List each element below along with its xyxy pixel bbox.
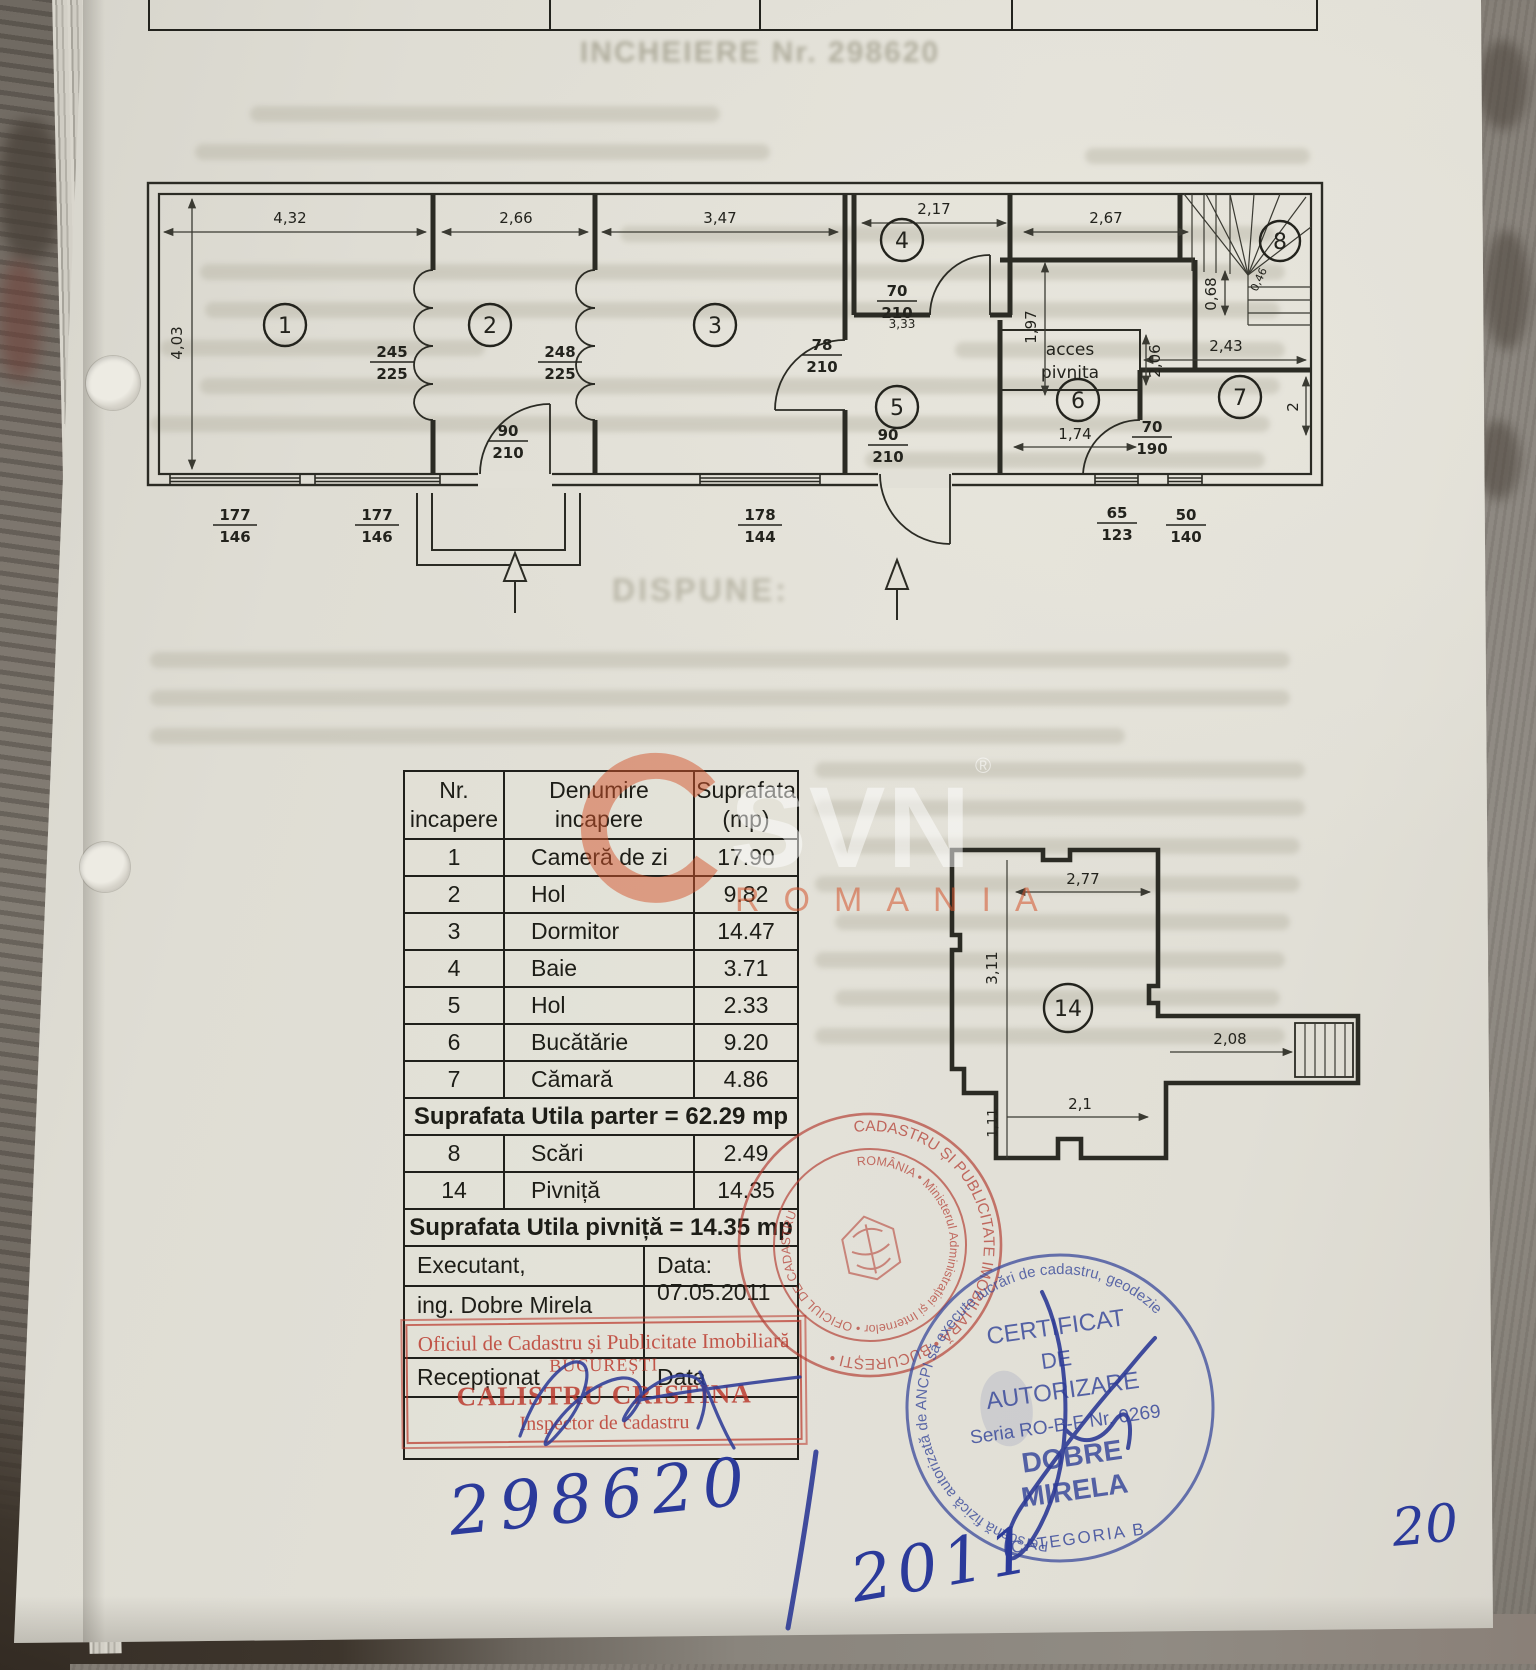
signature-inspector [520, 1362, 800, 1448]
watermark-registered-mark: ® [975, 753, 991, 778]
handwritten-slash [788, 1452, 816, 1628]
document-paper: INCHEIERE Nr. 298620 DISPUNE: [0, 0, 1536, 1664]
watermark-country: ROMANIA [735, 881, 1062, 919]
svn-watermark: SVN ® ROMANIA [555, 735, 1025, 925]
handwritten-page-number: 20 [1390, 1493, 1461, 1559]
photo-of-cadastral-document: { "page": { "bleed_title": "INCHEIERE Nr… [0, 0, 1536, 1664]
watermark-d-glyph [594, 766, 707, 890]
watermark-brand: SVN [730, 764, 972, 892]
